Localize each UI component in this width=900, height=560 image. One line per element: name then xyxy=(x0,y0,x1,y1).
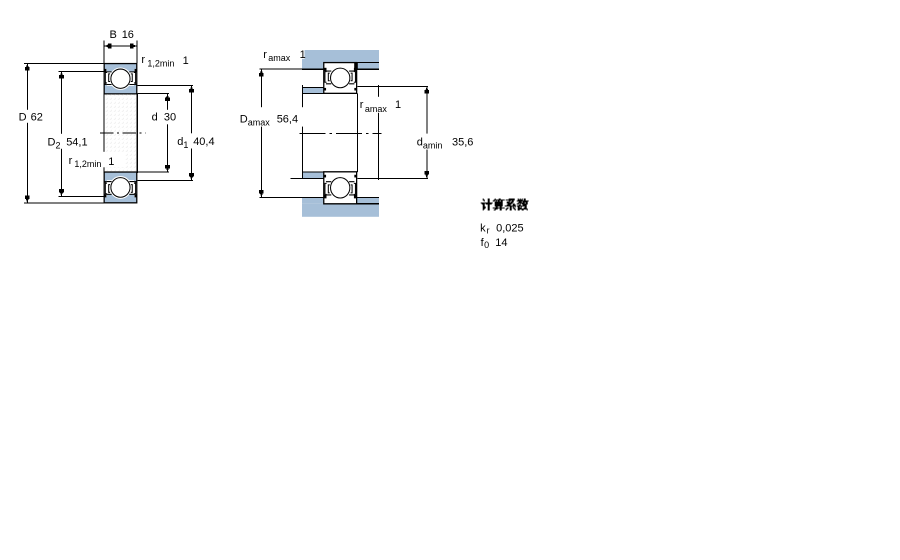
svg-text:1: 1 xyxy=(183,55,189,67)
svg-text:r: r xyxy=(263,49,267,61)
svg-text:30: 30 xyxy=(164,111,176,123)
svg-text:1,2min: 1,2min xyxy=(147,58,174,68)
svg-text:1,2min: 1,2min xyxy=(74,159,101,169)
svg-text:d: d xyxy=(152,111,158,123)
svg-text:r: r xyxy=(487,225,490,235)
svg-text:r: r xyxy=(141,54,145,66)
svg-text:k: k xyxy=(480,222,486,234)
svg-text:56,4: 56,4 xyxy=(277,114,298,126)
svg-text:D: D xyxy=(19,111,27,123)
svg-text:14: 14 xyxy=(495,237,507,249)
svg-text:amax: amax xyxy=(268,53,291,63)
svg-text:16: 16 xyxy=(122,29,134,41)
svg-text:r: r xyxy=(69,155,73,167)
svg-text:1: 1 xyxy=(395,99,401,111)
svg-text:0: 0 xyxy=(484,240,489,250)
svg-text:B: B xyxy=(110,29,117,41)
svg-text:40,4: 40,4 xyxy=(193,136,214,148)
svg-text:1: 1 xyxy=(108,156,114,168)
svg-text:amax: amax xyxy=(365,104,388,114)
svg-text:35,6: 35,6 xyxy=(452,136,473,148)
svg-text:0,025: 0,025 xyxy=(496,222,524,234)
svg-text:62: 62 xyxy=(31,111,43,123)
svg-text:54,1: 54,1 xyxy=(66,136,87,148)
svg-text:r: r xyxy=(360,99,364,111)
svg-text:1: 1 xyxy=(300,49,306,61)
